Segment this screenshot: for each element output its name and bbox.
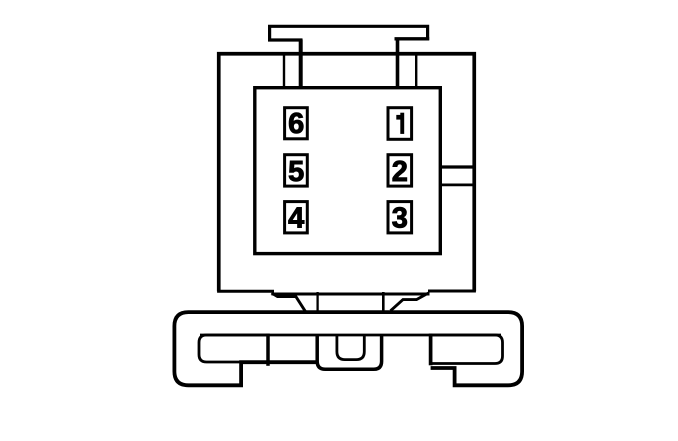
svg-text:3: 3 xyxy=(392,203,408,235)
svg-text:2: 2 xyxy=(392,156,408,188)
svg-text:4: 4 xyxy=(288,203,304,235)
svg-text:6: 6 xyxy=(288,108,304,140)
svg-text:5: 5 xyxy=(288,156,304,188)
